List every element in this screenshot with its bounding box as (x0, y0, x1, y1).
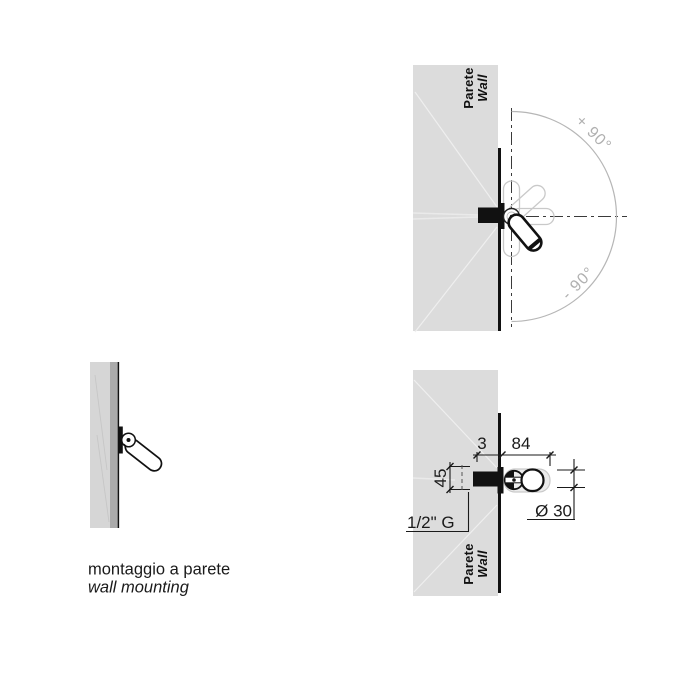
wall-label-it: Parete (461, 67, 476, 109)
dimension-view: Parete Wall 3 84 45 (406, 370, 585, 596)
wall-label-it: Parete (461, 543, 476, 585)
dim-height-value: 45 (431, 469, 450, 488)
technical-drawing-page: Parete Wall + 90° - 90° (0, 0, 700, 700)
thread-shank (473, 472, 498, 487)
wall-section (413, 65, 498, 331)
caption: montaggio a parete wall mounting (88, 561, 230, 597)
caption-english: wall mounting (88, 579, 190, 597)
thread-shank (478, 208, 500, 224)
dim-length-value: 84 (512, 434, 531, 453)
dim-offset-value: 3 (477, 434, 486, 453)
thread-spec-value: 1/2" G (407, 513, 455, 532)
wall-flange (498, 467, 504, 494)
spout-body (522, 470, 544, 492)
side-view (90, 362, 164, 528)
wall-label-en: Wall (475, 550, 490, 578)
wall-label-en: Wall (475, 74, 490, 102)
angle-positive-label: + 90° (572, 112, 614, 154)
caption-italian: montaggio a parete (88, 561, 230, 579)
pivot-center-dot (127, 438, 131, 442)
wall-edge-shading (110, 362, 117, 528)
drawing-canvas: Parete Wall + 90° - 90° (0, 0, 700, 700)
dim-diameter-value: Ø 30 (535, 502, 572, 521)
pivot-center-dot (512, 478, 516, 482)
rotation-view: Parete Wall + 90° - 90° (413, 65, 627, 332)
